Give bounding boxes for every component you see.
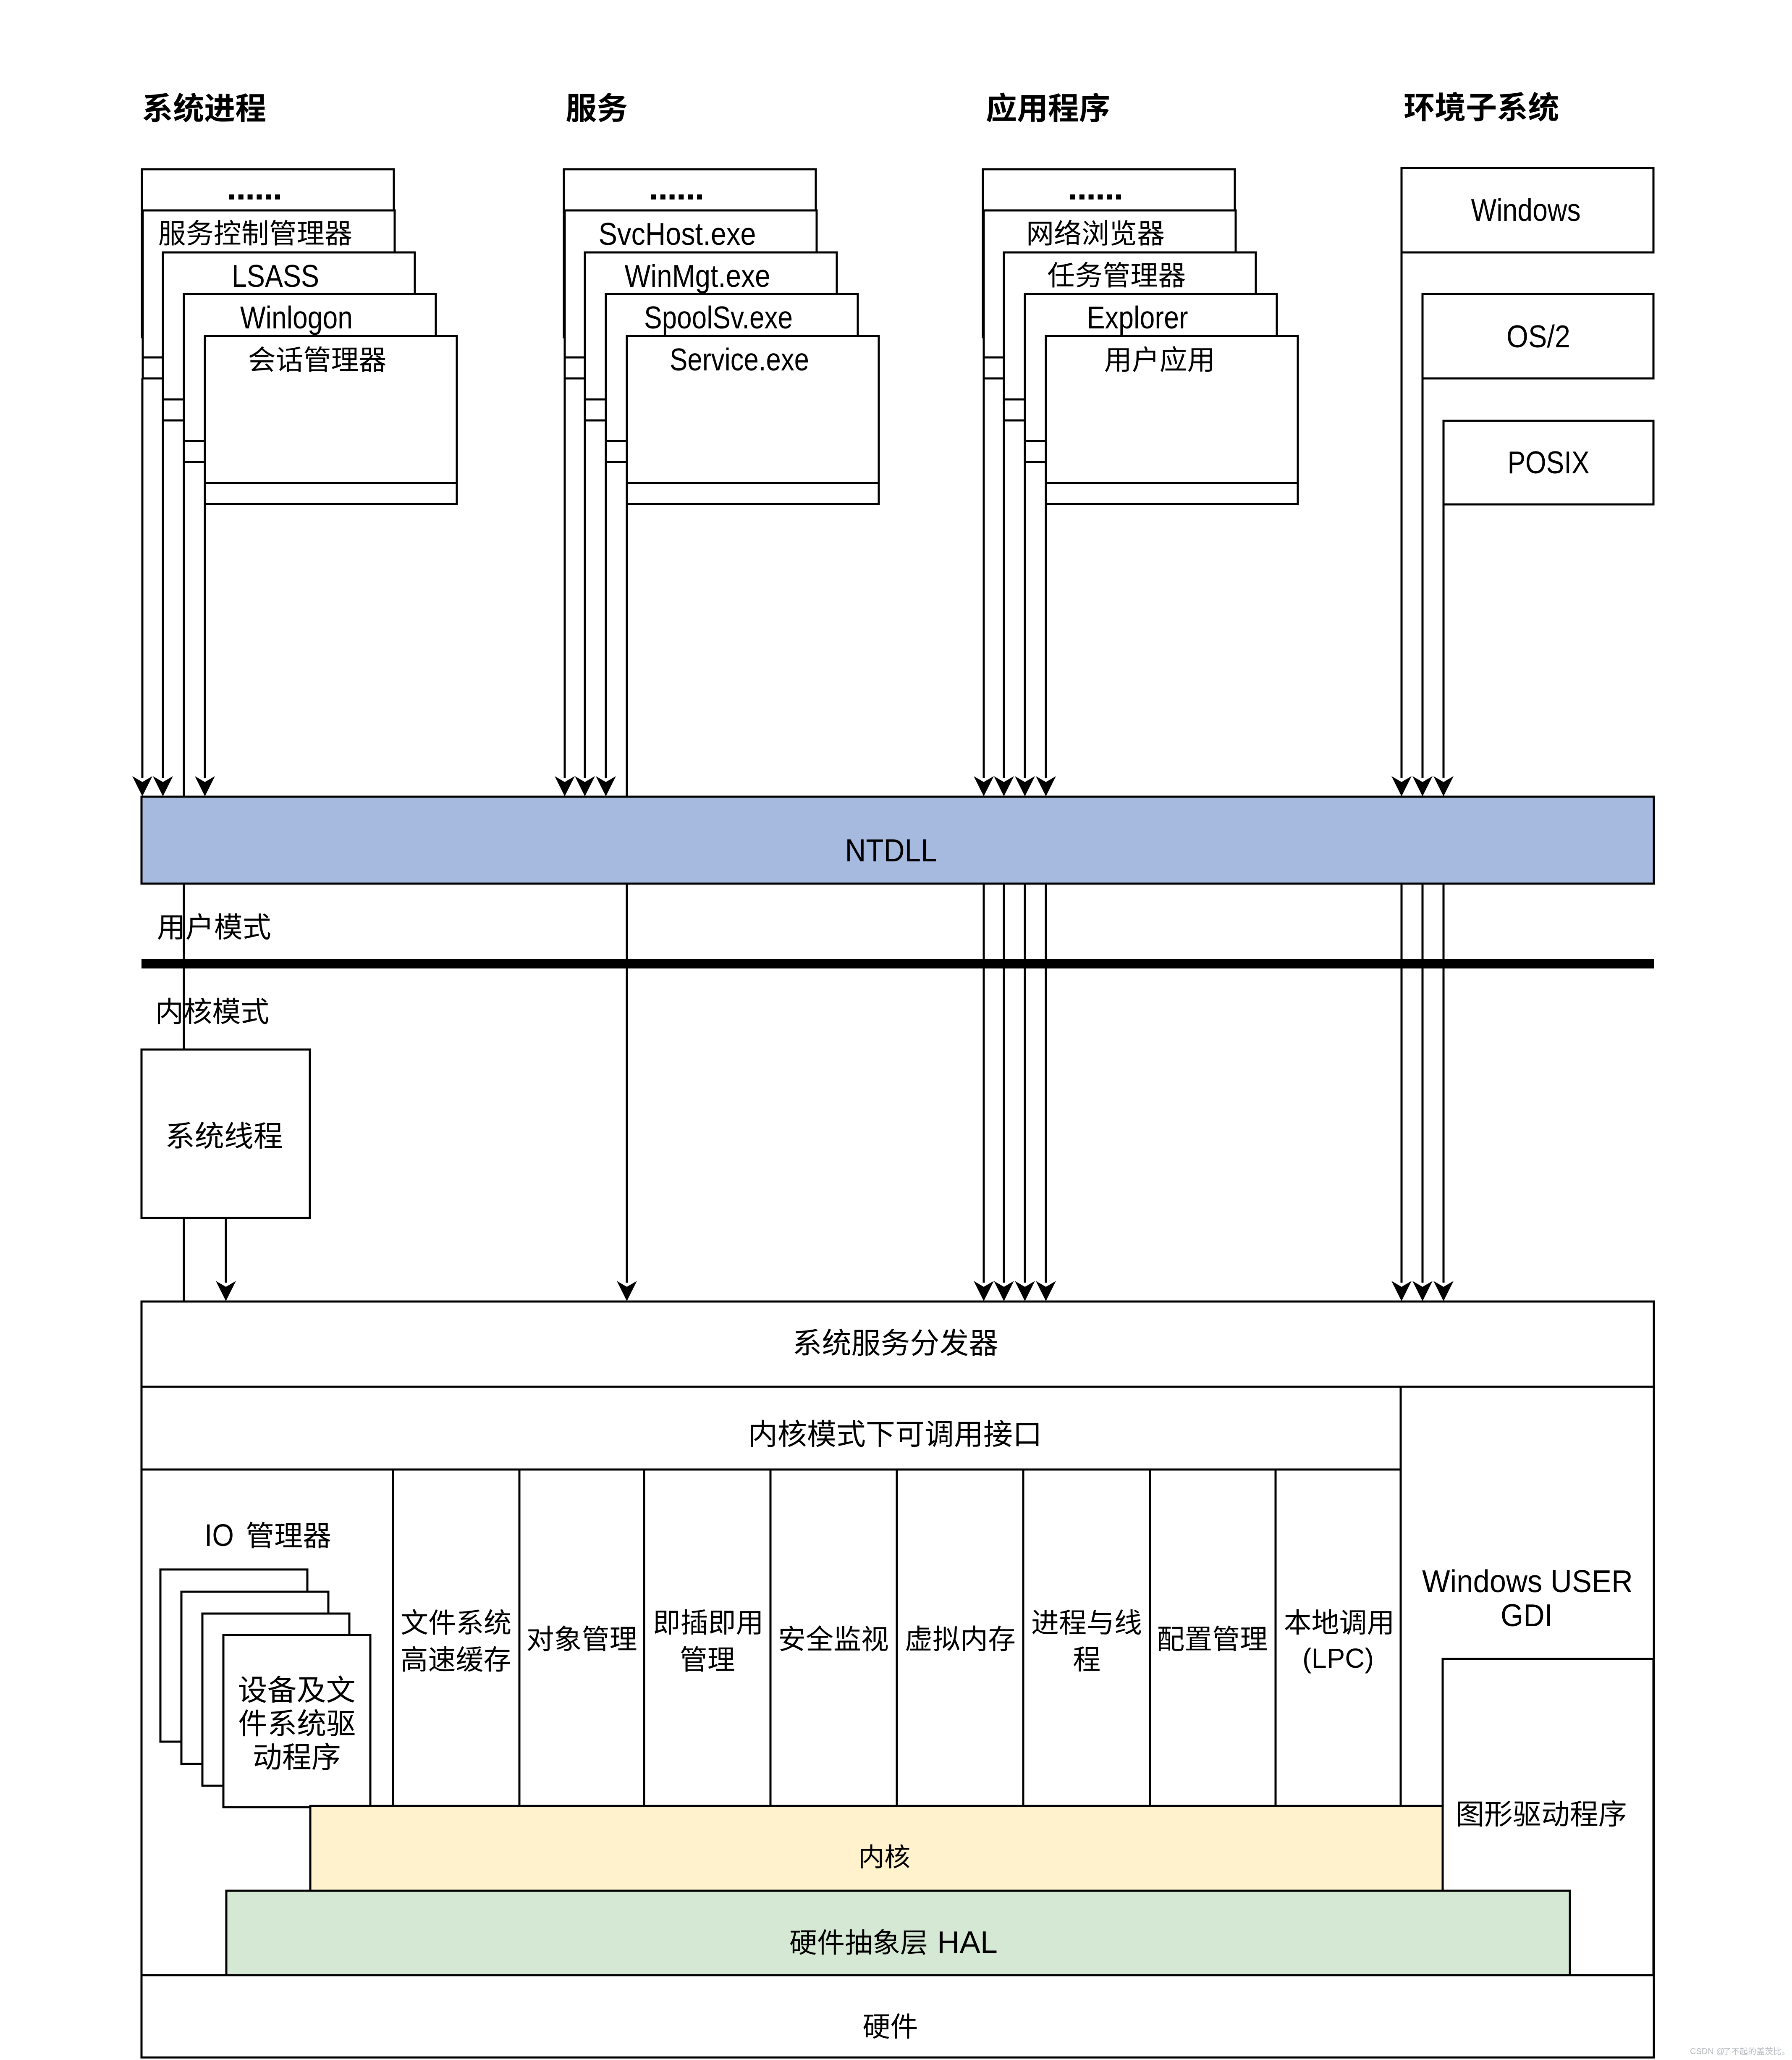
svg-text:Service.exe: Service.exe (670, 342, 809, 377)
svg-text:CSDN @: CSDN @ (1690, 2047, 1725, 2056)
svg-text:SvcHost.exe: SvcHost.exe (599, 216, 756, 252)
svg-text:Explorer: Explorer (1087, 300, 1188, 335)
svg-text:GDI: GDI (1501, 1598, 1553, 1633)
svg-text:(LPC): (LPC) (1302, 1643, 1374, 1674)
svg-text:LSASS: LSASS (232, 258, 319, 294)
svg-text:Winlogon: Winlogon (240, 300, 353, 335)
svg-text:IO: IO (204, 1518, 234, 1553)
svg-text:HAL: HAL (937, 1925, 998, 1960)
svg-text:OS/2: OS/2 (1506, 319, 1570, 354)
svg-text:Windows: Windows (1471, 192, 1581, 228)
svg-text:NTDLL: NTDLL (845, 833, 937, 869)
svg-text:WinMgt.exe: WinMgt.exe (625, 258, 770, 294)
svg-text:POSIX: POSIX (1508, 445, 1590, 480)
svg-text:SpoolSv.exe: SpoolSv.exe (644, 300, 793, 335)
svg-text:Windows USER: Windows USER (1422, 1564, 1633, 1599)
